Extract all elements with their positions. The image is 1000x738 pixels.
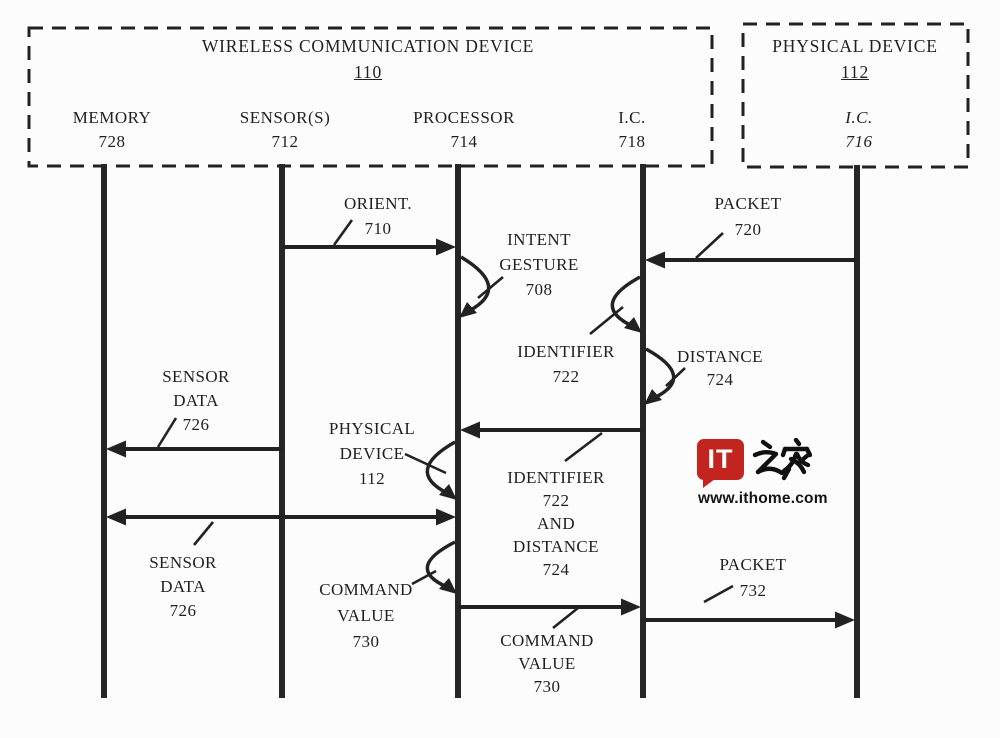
loop-distance-724 — [646, 349, 674, 398]
arrow-memory-processor-head-left — [106, 509, 126, 526]
loop-identifier-722 — [612, 277, 640, 326]
ithome-url: www.ithome.com — [698, 490, 828, 508]
lead-distance-724 — [666, 368, 685, 386]
diagram-drawing — [0, 0, 1000, 738]
ithome-logo-chars-icon — [750, 438, 812, 485]
arrow-memory-processor-head-right — [436, 509, 456, 526]
lead-orient-710 — [334, 220, 352, 245]
arrow-command-value-730-head-right — [621, 599, 641, 616]
physical-device-ref: 112 — [772, 59, 937, 85]
lead-intent-gesture-708 — [478, 277, 503, 298]
loop-command-value-730 — [427, 542, 455, 587]
lead-sensor-data-726-lower — [194, 522, 213, 545]
lead-identifier-and-distance — [565, 433, 602, 461]
loop-intent-gesture-708 — [461, 257, 489, 311]
ithome-watermark: IT www.ithome.com — [697, 437, 819, 513]
arrow-orient-710-head-right — [436, 239, 456, 256]
lead-command-value-730-right — [553, 608, 578, 628]
lead-physical-device-112 — [405, 454, 446, 473]
ithome-logo-bubble: IT — [697, 439, 744, 480]
physical-device-title-text: PHYSICAL DEVICE — [772, 33, 937, 59]
arrow-sensor-data-726-head-left — [106, 441, 126, 458]
patent-sequence-diagram: WIRELESS COMMUNICATION DEVICE 110 PHYSIC… — [0, 0, 1000, 738]
wireless-device-title-text: WIRELESS COMMUNICATION DEVICE — [202, 33, 534, 59]
ithome-logo-bubble-tail — [703, 479, 715, 488]
arrow-identifier-and-distance-head-left — [460, 422, 480, 439]
lead-identifier-722 — [590, 307, 623, 334]
arrow-packet-732-head-right — [835, 612, 855, 629]
arrow-packet-720-head-left — [645, 252, 665, 269]
wireless-device-box-title: WIRELESS COMMUNICATION DEVICE 110 — [202, 33, 534, 85]
ithome-logo-text: IT — [708, 444, 734, 474]
lead-packet-732 — [704, 586, 733, 602]
loop-intent-gesture-708-head — [459, 302, 477, 318]
physical-device-box-title: PHYSICAL DEVICE 112 — [772, 33, 937, 85]
wireless-device-ref: 110 — [202, 59, 534, 85]
lead-packet-720 — [696, 233, 723, 258]
lead-sensor-data-726-upper — [158, 418, 176, 447]
